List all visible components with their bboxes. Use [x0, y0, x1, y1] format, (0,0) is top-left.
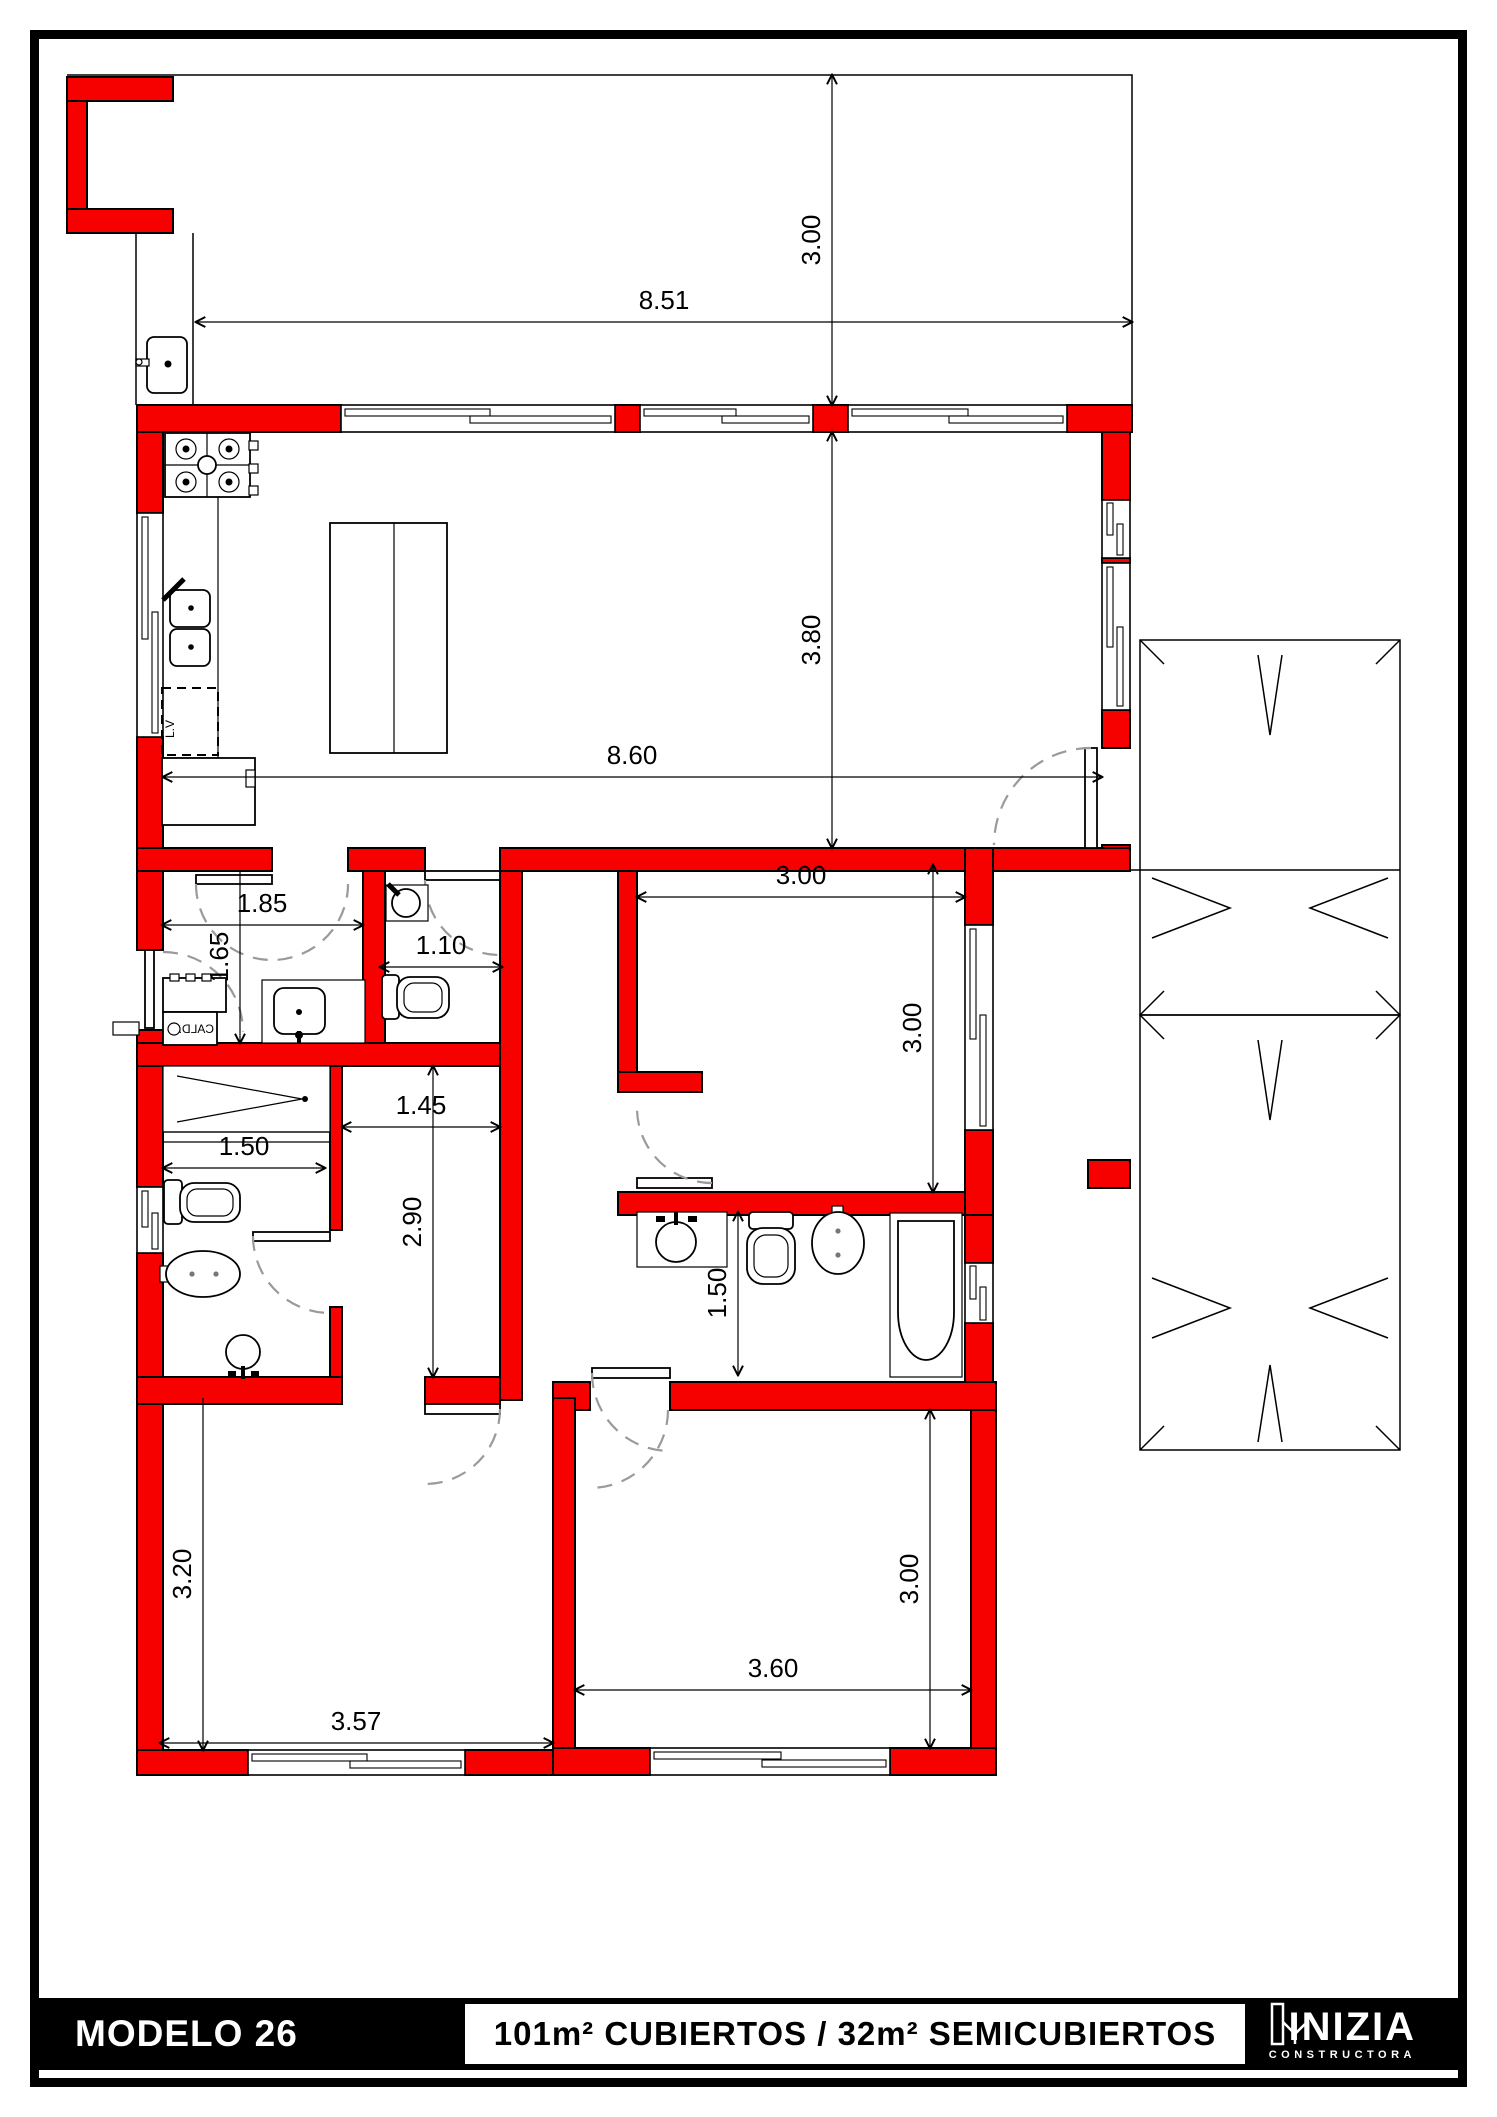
stove-icon [165, 433, 258, 497]
title-bar: MODELO 26 101m² CUBIERTOS / 32m² SEMICUB… [39, 1998, 1458, 2070]
plan-sheet: L.V CALD. [0, 0, 1497, 2117]
bathroom2-toilet [164, 1180, 240, 1224]
corner-washbasin [386, 884, 428, 921]
window [137, 513, 163, 737]
dim-bedroom3-depth: 3.00 [897, 1003, 927, 1054]
window [965, 1263, 993, 1323]
window [248, 1750, 465, 1775]
front-galeria [67, 75, 1132, 405]
fridge [162, 758, 255, 825]
hall-vanity-sink [262, 980, 365, 1043]
floor-plan: L.V CALD. [0, 0, 1497, 2117]
bathroom2-bidet [160, 1251, 240, 1297]
area-label: 101m² CUBIERTOS / 32m² SEMICUBIERTOS [494, 2015, 1216, 2053]
window [650, 1748, 890, 1775]
dim-frente: 8.51 [639, 285, 690, 315]
logo-tagline: CONSTRUCTORA [1269, 2050, 1416, 2061]
company-logo: INIZIA CONSTRUCTORA [1269, 1998, 1416, 2070]
window [1102, 500, 1130, 558]
window [137, 1187, 163, 1253]
dim-bedroom1-depth: 3.20 [167, 1549, 197, 1600]
building-icon [1269, 1998, 1309, 2050]
dim-hall-depth: 1.65 [204, 932, 234, 983]
dim-bedroom2-width: 3.60 [748, 1653, 799, 1683]
dim-bath-depth: 1.50 [702, 1268, 732, 1319]
bedroom1-door [425, 1404, 500, 1484]
dim-pasillo-length: 2.90 [397, 1197, 427, 1248]
island-table [330, 523, 447, 753]
outdoor-sink [136, 337, 187, 393]
bathroom1-vanity [637, 1212, 727, 1267]
window [1102, 563, 1130, 710]
dishwasher: L.V [162, 688, 218, 755]
bathroom1-bidet [812, 1206, 864, 1274]
dim-living-width: 8.60 [607, 740, 658, 770]
window [848, 405, 1067, 432]
boiler-label: CALD. [179, 1022, 214, 1036]
dim-galeria-depth: 3.00 [796, 215, 826, 266]
dishwasher-label: L.V [163, 720, 177, 738]
patio-chevrons [1140, 640, 1400, 1450]
dim-hall-width: 1.85 [237, 888, 288, 918]
living-galeria-door [994, 748, 1097, 848]
bathroom1-door [592, 1368, 670, 1451]
dim-pasillo-width: 1.45 [396, 1090, 447, 1120]
kitchen-sink [163, 579, 210, 666]
model-label: MODELO 26 [75, 2013, 298, 2055]
patio-semicubierto [1130, 640, 1400, 1450]
dim-bedroom2-depth: 3.00 [894, 1554, 924, 1605]
parrilla-grill [67, 77, 173, 233]
boiler: CALD. [113, 1012, 217, 1045]
window [640, 405, 813, 432]
area-box: 101m² CUBIERTOS / 32m² SEMICUBIERTOS [465, 2004, 1245, 2064]
window [965, 925, 993, 1130]
dim-bedroom1-width: 3.57 [331, 1706, 382, 1736]
bathroom1-toilet [747, 1212, 795, 1284]
dim-shower-width: 1.50 [219, 1131, 270, 1161]
window [341, 405, 615, 432]
dim-living-depth: 3.80 [796, 615, 826, 666]
toilette-toilet [382, 975, 449, 1019]
dim-toilette-width: 1.10 [416, 930, 467, 960]
bathroom2-washbasin [226, 1335, 260, 1379]
bathroom2-door [253, 1232, 330, 1313]
dim-bedroom3-width: 3.00 [776, 860, 827, 890]
bedroom3-door [637, 1108, 712, 1188]
bathtub [890, 1213, 962, 1377]
